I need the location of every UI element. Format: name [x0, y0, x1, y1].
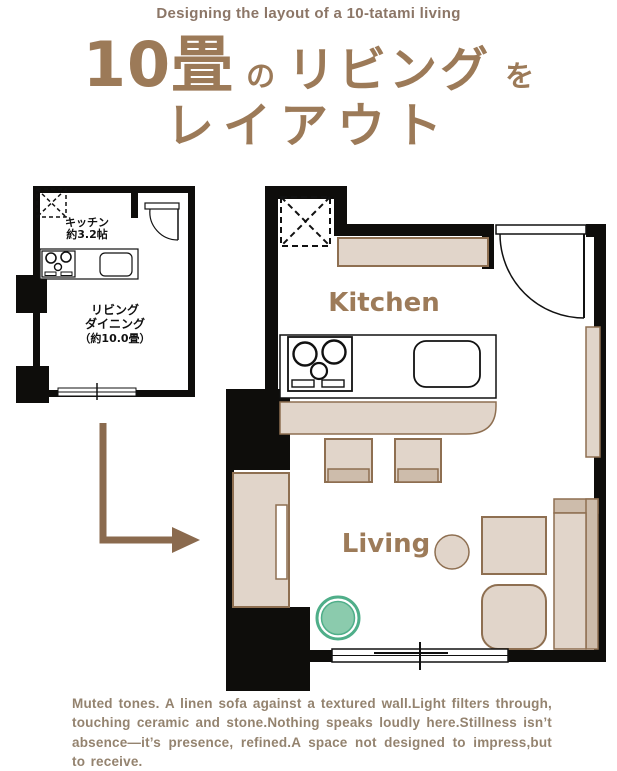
wall-segment — [33, 186, 40, 278]
after-kitchen-label: Kitchen — [328, 288, 440, 318]
wall-segment — [188, 186, 195, 397]
ottoman — [482, 585, 546, 649]
wall-pillar — [16, 366, 49, 403]
bar-counter — [280, 402, 496, 434]
side-cabinet — [233, 473, 289, 607]
bar-stool — [395, 439, 441, 482]
stove-icon — [288, 337, 352, 391]
page-subtitle: Designing the layout of a 10-tatami livi… — [0, 5, 617, 22]
page-title: 10畳 の リビング を レイアウト — [0, 34, 617, 150]
round-side-table — [435, 535, 469, 569]
bar-stool — [325, 439, 372, 482]
title-line-1: 10畳 の リビング を — [0, 34, 617, 96]
after-living-label: Living — [342, 529, 430, 559]
wall-segment — [33, 311, 40, 369]
wall-segment — [508, 650, 606, 662]
title-noun: リビング — [287, 46, 491, 94]
title-particle-1: の — [246, 62, 275, 91]
kitchen-counter — [40, 249, 138, 279]
caption-text: Muted tones. A linen sofa against a text… — [72, 694, 552, 771]
floor-cushion — [482, 517, 546, 574]
sink-icon — [414, 341, 480, 387]
dashed-x-closet-icon — [37, 189, 66, 217]
right-shelf — [586, 327, 600, 457]
before-living-area: （約10.0畳） — [79, 331, 150, 345]
kitchen-counter — [280, 335, 496, 398]
before-kitchen-area: 約3.2帖 — [66, 227, 108, 241]
before-living-label: リビング — [91, 302, 139, 317]
title-line-2: レイアウト — [0, 102, 617, 150]
sliding-window-icon — [332, 642, 508, 670]
stove-icon — [42, 251, 75, 277]
before-dining-label: ダイニング — [85, 316, 145, 331]
wall-segment — [265, 186, 278, 392]
before-floor-plan: キッチン 約3.2帖 リビング ダイニング （約10.0畳） — [12, 183, 202, 403]
sofa — [554, 499, 598, 649]
infographic-page: Designing the layout of a 10-tatami livi… — [0, 0, 617, 771]
top-shelf — [338, 238, 488, 266]
door-swing-icon — [496, 225, 586, 318]
title-particle-2: を — [505, 62, 534, 91]
wall-segment — [131, 186, 138, 218]
elbow-arrow-icon — [90, 415, 210, 565]
after-floor-plan: Kitchen Living — [224, 183, 612, 695]
wall-segment — [33, 186, 195, 193]
sink-icon — [100, 253, 132, 276]
title-size-text: 10畳 — [83, 34, 234, 96]
wall-pillar — [226, 607, 310, 691]
sliding-window-icon — [58, 383, 136, 400]
plant-icon — [317, 597, 359, 639]
wall-pillar — [16, 275, 47, 313]
door-swing-icon — [145, 203, 179, 240]
wall-segment — [310, 650, 334, 662]
dashed-x-closet-icon — [281, 197, 330, 246]
wall-segment — [334, 224, 494, 236]
